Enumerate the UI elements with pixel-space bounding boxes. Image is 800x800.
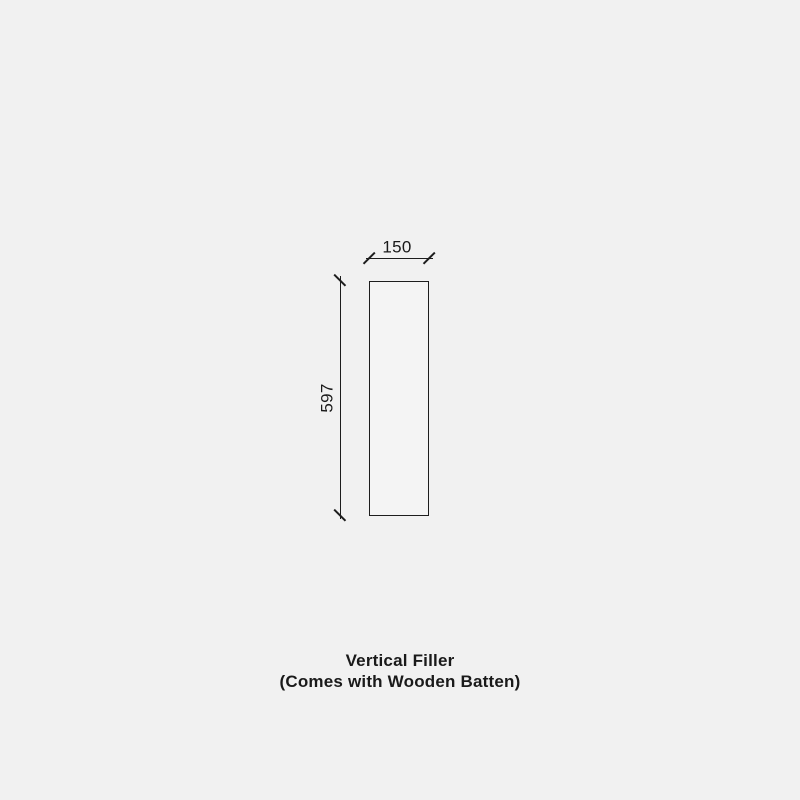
caption: Vertical Filler (Comes with Wooden Batte… xyxy=(0,650,800,692)
filler-panel-outline xyxy=(369,281,429,516)
width-dimension-label: 150 xyxy=(382,239,411,256)
diagram-canvas: 150 597 Vertical Filler (Comes with Wood… xyxy=(0,0,800,800)
caption-title: Vertical Filler xyxy=(0,650,800,671)
width-dimension-line xyxy=(366,258,433,260)
height-dimension-line xyxy=(340,276,342,519)
height-dimension-label: 597 xyxy=(319,383,336,412)
caption-subtitle: (Comes with Wooden Batten) xyxy=(0,671,800,692)
